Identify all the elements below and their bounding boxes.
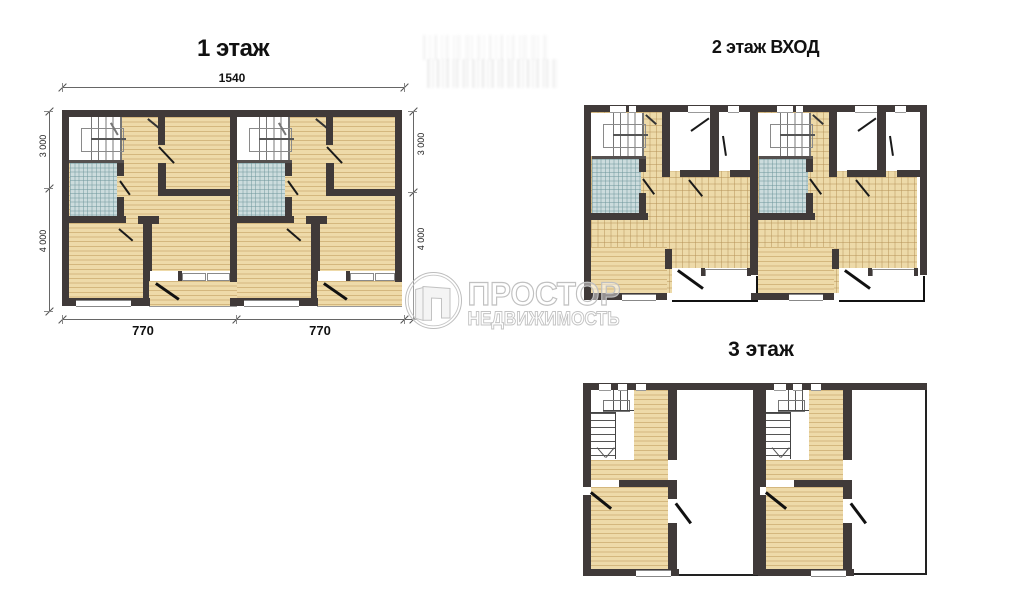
svg-text:НЕДВИЖИМОСТЬ: НЕДВИЖИМОСТЬ — [468, 308, 620, 330]
svg-text:ПРОСТОР: ПРОСТОР — [468, 276, 621, 312]
